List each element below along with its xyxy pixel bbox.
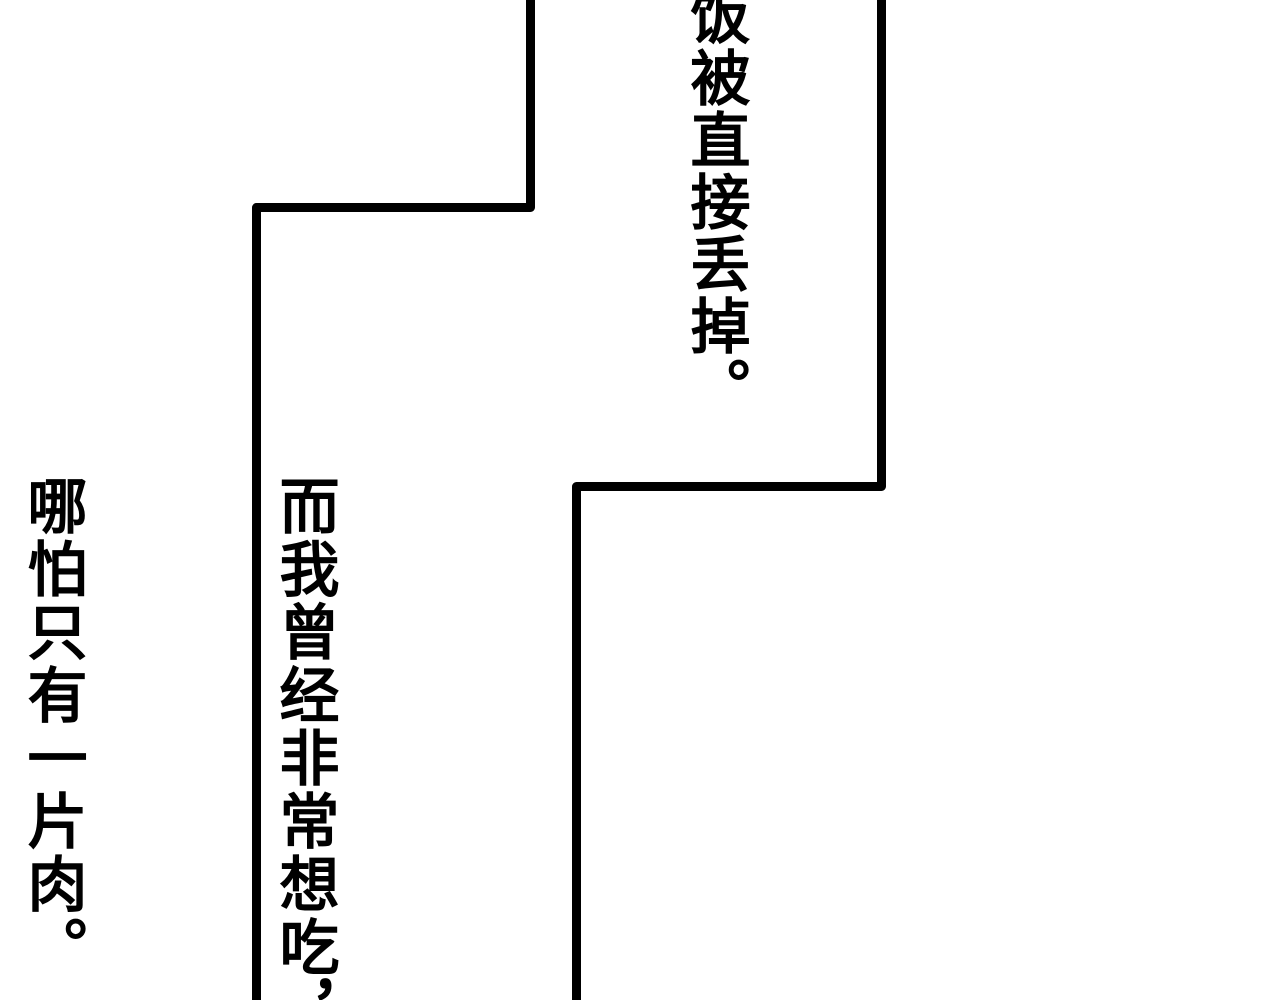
dialogue-text-top: 饭被直接丢掉。 xyxy=(684,0,746,419)
dialogue-line-1: 而我曾经非常想吃， xyxy=(262,475,346,1000)
dialogue-line-2: 哪怕只有一片肉。 xyxy=(10,475,94,1000)
comic-page: 饭被直接丢掉。 而我曾经非常想吃， 哪怕只有一片肉。 xyxy=(0,0,1280,1000)
dialogue-text-bottom: 而我曾经非常想吃， 哪怕只有一片肉。 xyxy=(346,475,514,1000)
